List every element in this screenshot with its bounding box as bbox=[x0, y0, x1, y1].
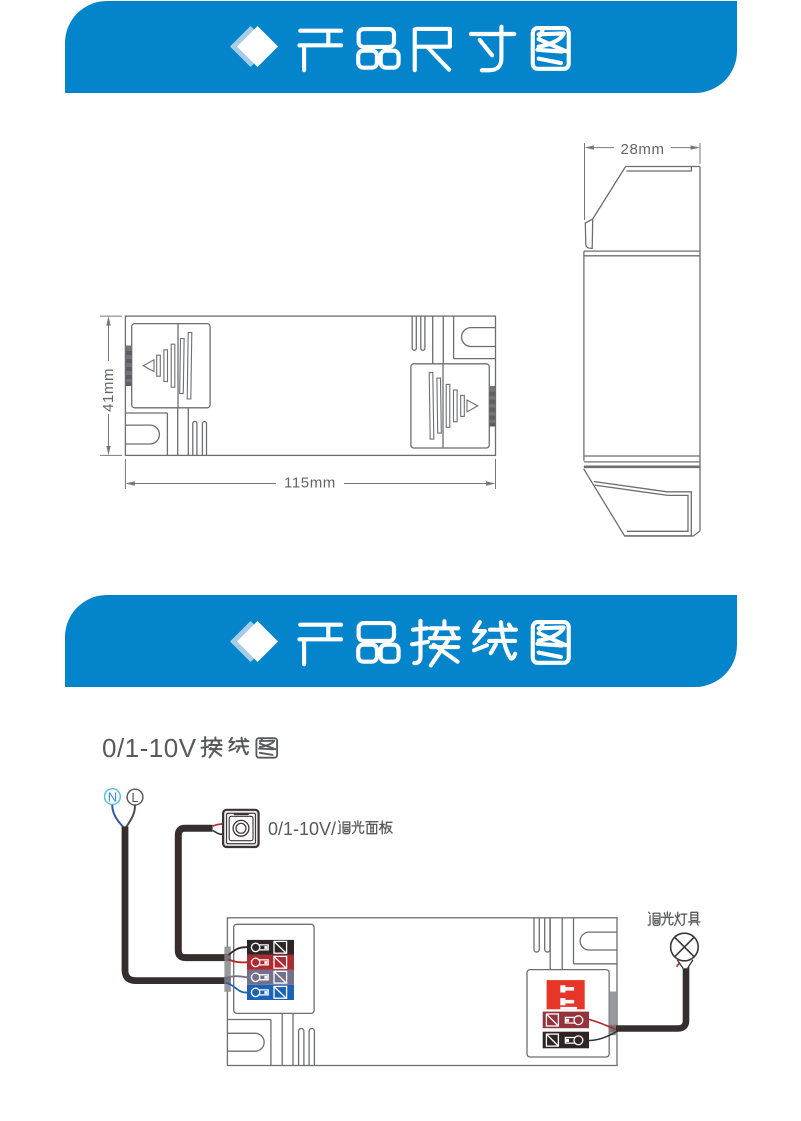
svg-text:0/1-10V/: 0/1-10V/ bbox=[268, 819, 336, 839]
svg-text:0/1-10V: 0/1-10V bbox=[102, 733, 197, 763]
svg-text:41mm: 41mm bbox=[100, 368, 117, 412]
svg-text:115mm: 115mm bbox=[284, 475, 336, 492]
svg-text:28mm: 28mm bbox=[621, 141, 665, 158]
svg-text:N: N bbox=[108, 790, 117, 805]
svg-text:L: L bbox=[131, 790, 138, 805]
